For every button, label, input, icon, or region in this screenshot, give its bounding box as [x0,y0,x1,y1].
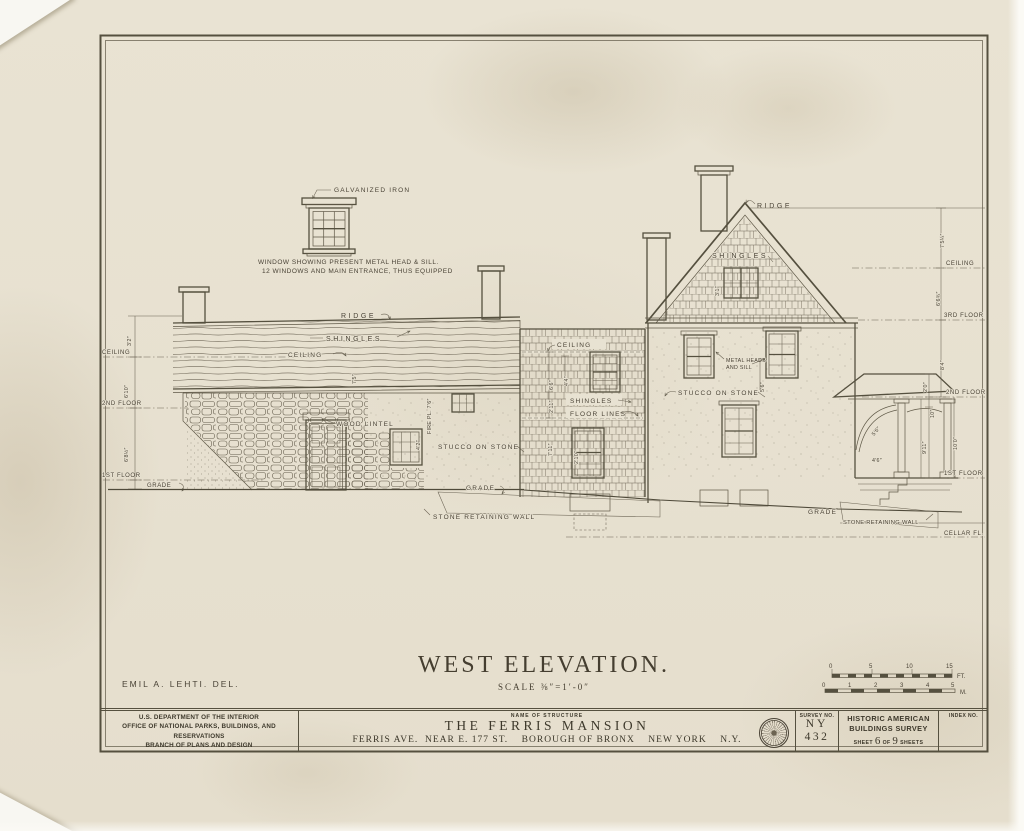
label-3rd-floor: 3RD FLOOR [944,313,984,319]
label-ceiling-right: CEILING [946,261,974,267]
dim-m6: 4′2″ [416,440,422,450]
dim-porch-1: 2′0″ [923,382,929,392]
label-ceiling-left-inner: CEILING [288,352,322,359]
dim-porch-2: 10″ [930,409,936,418]
survey-state: NY [796,719,838,731]
agency-cell: U.S. DEPARTMENT OF THE INTERIOR OFFICE O… [100,711,298,752]
label-floor-lines: FLOOR LINES [570,411,626,418]
dim-mid-1: 6′6″ [549,380,555,390]
label-ceiling-left: CEILING [102,350,130,356]
label-2nd-floor-left: 2ND FLOOR [102,401,142,407]
main-chimney [701,175,727,231]
dim-mid-3: 2′11″ [549,400,555,413]
label-stucco-right: STUCCO ON STONE [678,390,759,397]
dim-w1: 5′6″ [760,382,766,392]
agency-line-3: BRANCH OF PLANS AND DESIGN [100,741,298,750]
dim-porch-3: 9′11″ [922,441,928,454]
dim-right-1: 7′5¼″ [940,233,946,248]
detail-caption-1: WINDOW SHOWING PRESENT METAL HEAD & SILL… [258,259,439,266]
label-grade-mid: GRADE [466,485,495,492]
label-cellar: CELLAR FL. [944,531,984,537]
porch-steps [880,478,907,505]
index-number-cell: INDEX NO. [938,711,988,752]
gable [658,217,833,322]
delineator-credit: EMIL A. LEHTI. DEL. [122,679,240,689]
sheet-word: SHEET [854,740,873,746]
paper-edge-bottom [0,821,1024,831]
kitchen-flue [647,238,666,320]
dim-right-4: 10′0″ [953,437,959,450]
sheet-number: 6 [875,735,881,747]
sheet-total: 9 [892,735,898,747]
habs-line-2: BUILDINGS SURVEY [839,724,938,734]
label-shingles-left: SHINGLES [326,336,382,343]
dim-left-2: 6′10″ [124,385,130,398]
label-ridge-right: RIDGE [757,203,792,210]
label-ceiling-mid: CEILING [557,342,591,349]
left-chimney [183,292,205,323]
label-shingles-right: SHINGLES [712,253,768,260]
dim-right-3: 8′4″ [940,360,946,370]
label-2nd-floor-right: 2ND FLOOR [946,390,986,396]
paper-edge-right [1008,0,1024,831]
dim-left-1: 3′2″ [127,336,133,346]
window-detail: GALVANIZED IRON WINDOW SHOWING PRESENT M… [258,187,453,275]
dim-right-2: 6′6¾″ [936,291,942,306]
sheet-of: OF [883,740,891,746]
window [719,401,759,457]
dim-mid-5: 2′10″ [574,451,580,464]
index-no-label: INDEX NO. [939,713,988,719]
label-wood-lintel: WOOD LINTEL [336,421,394,428]
detail-callout: GALVANIZED IRON [334,187,410,194]
nps-seal [759,718,789,748]
center-chimney [482,271,500,319]
survey-number: 432 [796,731,838,744]
detail-caption-2: 12 WINDOWS AND MAIN ENTRANCE, THUS EQUIP… [262,268,453,275]
structure-name: THE FERRIS MANSION [299,719,795,734]
label-grade-right: GRADE [808,509,837,516]
label-grade-left: GRADE [147,483,171,489]
dim-w2: 3′1″ [715,286,721,296]
dim-left-3: 6′8½″ [123,447,130,462]
stucco-wall-right [648,328,855,478]
dimension-lines-right: 7′5¼″ 6′6¾″ 8′4″ 10′0″ [936,208,959,478]
title-block: U.S. DEPARTMENT OF THE INTERIOR OFFICE O… [100,708,988,752]
label-shingles-mid: SHINGLES [570,398,612,405]
porch-post [894,399,909,478]
cellar-window [570,494,610,530]
dim-mid-0: 7′5″ [352,374,358,384]
left-house: RIDGE SHINGLES CEILING WOOD LINTEL STUCC… [173,266,524,490]
left-roof [173,318,520,390]
dim-mid-2: 4′4″ [564,376,570,386]
sheet-title: WEST ELEVATION. [100,652,988,679]
drawing-sheet: GALVANIZED IRON WINDOW SHOWING PRESENT M… [0,0,1024,831]
structure-cell: NAME OF STRUCTURE THE FERRIS MANSION FER… [298,711,795,752]
right-house: 3′1″ SHINGLES RIDGE METAL HEADS AND SILL… [643,166,858,506]
label-retaining-mid: STONE RETAINING WALL [433,514,535,521]
habs-line-1: HISTORIC AMERICAN [839,714,938,724]
agency-line-1: U.S. DEPARTMENT OF THE INTERIOR [100,713,298,722]
label-metal-heads-2: AND SILL [726,365,752,371]
elevation-drawing: GALVANIZED IRON WINDOW SHOWING PRESENT M… [0,0,1024,831]
label-stucco-left: STUCCO ON STONE [438,444,519,451]
label-ridge-left: RIDGE [341,313,376,320]
structure-address: FERRIS AVE. NEAR E. 177 ST. BOROUGH OF B… [299,734,795,747]
label-retaining-right: STONE RETAINING WALL [843,520,919,526]
dim-porch-4: 5′6″ [871,426,882,437]
agency-line-2: OFFICE OF NATIONAL PARKS, BUILDINGS, AND… [100,722,298,741]
dim-porch-5: 4′6″ [872,458,882,464]
sheet-count: SHEET 6 OF 9 SHEETS [839,734,938,749]
habs-cell: HISTORIC AMERICAN BUILDINGS SURVEY SHEET… [838,711,938,752]
label-1st-floor-right: 1ST FLOOR [944,471,983,477]
dim-mid-4: 7′11″ [548,443,554,456]
sheets-word: SHEETS [900,740,923,746]
dim-fireplace: FIRE PL. 7′6″ [427,398,433,434]
survey-number-cell: SURVEY NO. NY 432 [795,711,838,752]
window [763,327,801,378]
